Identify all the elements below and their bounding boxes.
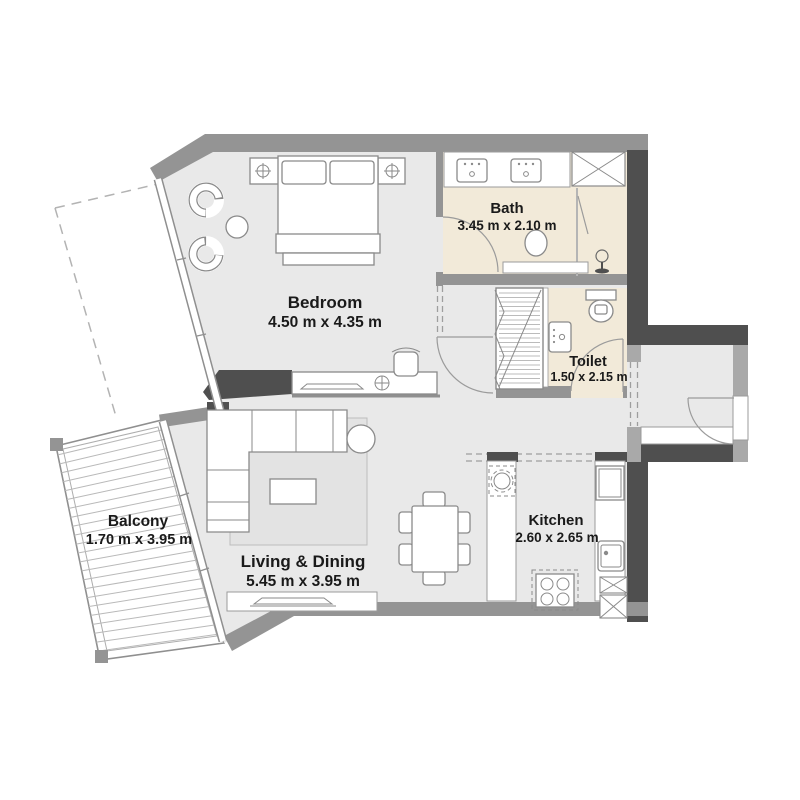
balcony-corner-post	[50, 438, 63, 451]
bath-dims: 3.45 m x 2.10 m	[457, 218, 556, 233]
bed-blanket	[276, 234, 380, 253]
wall-bedroom-east-b	[436, 272, 443, 286]
floor-plan: Bedroom 4.50 m x 4.35 m Bath 3.45 m x 2.…	[0, 0, 800, 800]
bed	[276, 156, 380, 265]
toilet-tank	[586, 290, 616, 300]
pillow	[282, 161, 326, 184]
sink-icon	[549, 322, 571, 352]
shaft-icon	[600, 595, 627, 618]
entry-jamb	[627, 345, 641, 362]
dining-chair	[399, 512, 413, 533]
shaft-icon	[572, 152, 625, 186]
toilet-seat	[595, 305, 607, 314]
wall-entry-bottom	[641, 443, 733, 462]
kitchen-dims: 2.60 x 2.65 m	[515, 530, 598, 545]
toilet-door-gap	[571, 386, 623, 398]
bedroom-label: Bedroom	[288, 293, 363, 312]
kitchen-sink-icon	[598, 541, 624, 571]
bath-label: Bath	[490, 200, 523, 217]
entry-jamb	[627, 427, 641, 462]
dining-chair	[423, 571, 445, 585]
sink-icon	[511, 159, 541, 182]
wardrobe-side-wall	[543, 288, 548, 387]
dining-chair	[423, 492, 445, 507]
entrance-door-gap	[733, 396, 748, 440]
bedroom-dims: 4.50 m x 4.35 m	[268, 314, 382, 331]
wall-right-upper	[627, 150, 648, 325]
living-window	[227, 592, 377, 611]
pillow	[330, 161, 374, 184]
fridge-icon	[596, 466, 624, 500]
wall-bedroom-east-a	[436, 150, 443, 217]
desk-chair	[392, 348, 420, 376]
living-label: Living & Dining	[241, 552, 366, 571]
mirror-icon	[375, 376, 389, 390]
stove-icon	[532, 570, 578, 610]
wall-bath-bottom	[443, 274, 627, 285]
dining-chair	[399, 544, 413, 565]
bed-bench	[283, 253, 374, 265]
toilet-dims: 1.50 x 2.15 m	[550, 370, 627, 384]
kitchen-counter-left	[487, 461, 516, 601]
toilet-label: Toilet	[569, 354, 607, 370]
kitchen-label: Kitchen	[528, 512, 583, 529]
wall-entry-top	[627, 325, 748, 345]
side-table	[347, 425, 375, 453]
dining-table	[412, 506, 458, 572]
side-table	[226, 216, 248, 238]
sink-icon	[457, 159, 487, 182]
entry-jamb	[733, 440, 748, 462]
shaft-icon	[600, 577, 627, 593]
living-dims: 5.45 m x 3.95 m	[246, 573, 360, 590]
balcony-corner-post	[95, 650, 108, 663]
toilet-icon	[525, 230, 547, 256]
wardrobe	[495, 288, 548, 389]
bath-ledge	[503, 262, 588, 273]
coffee-table	[270, 479, 316, 504]
wall-right-lower	[627, 445, 648, 622]
balcony-dims: 1.70 m x 3.95 m	[86, 532, 192, 548]
entry-jamb	[733, 345, 748, 396]
balcony-label: Balcony	[108, 513, 169, 530]
